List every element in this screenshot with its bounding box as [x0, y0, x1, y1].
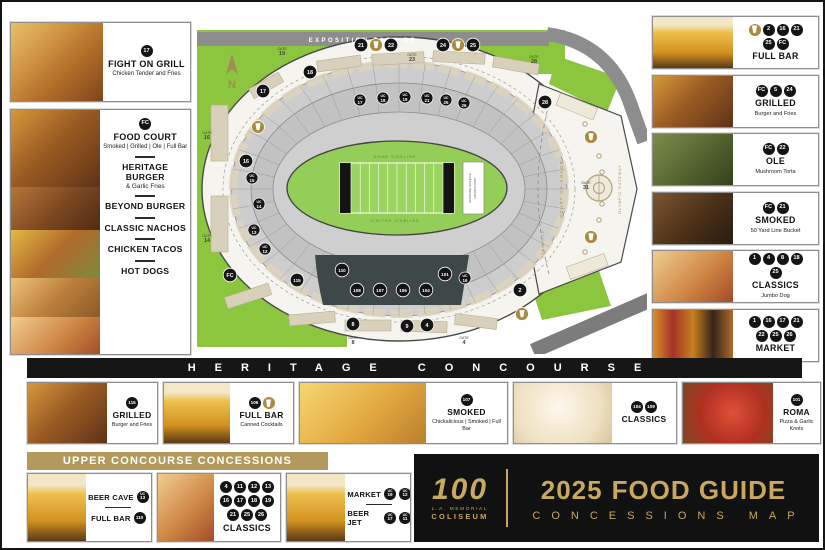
- vendor-subtitle: Canned Cocktails: [240, 422, 282, 428]
- stand-badge: 13: [262, 481, 274, 493]
- map-marker-9: 9: [400, 319, 414, 333]
- vendor-title: ROMA: [783, 408, 810, 417]
- stand-badge: 21: [791, 24, 803, 36]
- left-panel-column: 17FIGHT ON GRILLChicken Tender and Fries…: [10, 22, 191, 355]
- stand-badge: 17: [141, 45, 153, 57]
- heritage-card-full-bar: 106FULL BARCanned Cocktails: [163, 382, 294, 444]
- svg-text:8: 8: [352, 322, 355, 328]
- vendor-row: BEER JETUC17UC11: [347, 509, 411, 527]
- svg-text:15: 15: [250, 178, 255, 183]
- hotdog-photo: [653, 251, 733, 302]
- vendor-title: CLASSICS: [622, 415, 667, 424]
- menu-item-title: HERITAGE BURGER: [102, 163, 188, 182]
- map-marker-28: 28: [538, 95, 552, 109]
- vendor-info: 2162125FCFULL BAR: [733, 17, 818, 68]
- svg-text:17: 17: [260, 89, 266, 95]
- map-marker-beer: [252, 121, 265, 134]
- stand-badge: 8: [777, 253, 789, 265]
- map-marker-8: 8: [346, 317, 360, 331]
- fight-on-grill-info: 17FIGHT ON GRILLChicken Tender and Fries: [103, 23, 190, 101]
- vendor-subtitle: Jumbo Dog: [761, 293, 790, 300]
- hotdog-photo: [11, 317, 100, 354]
- court-of-honor-label: COURT OF HONOR: [559, 160, 564, 218]
- map-marker-16: 16: [239, 154, 253, 168]
- food-guide-title: 2025 FOOD GUIDE: [541, 475, 787, 506]
- panel-fight-on-grill: 17FIGHT ON GRILLChicken Tender and Fries: [10, 22, 191, 102]
- stand-badges: 2162125FC: [749, 24, 803, 50]
- stand-badge: FC: [756, 85, 768, 97]
- heritage-card-smoked: 107SMOKEDChickalicious | Smoked | Full B…: [299, 382, 508, 444]
- svg-text:21: 21: [358, 43, 364, 49]
- menu-item-title: CLASSIC NACHOS: [104, 224, 186, 234]
- stand-badge: 16: [220, 495, 232, 507]
- concessions-map-subtitle: CONCESSIONS MAP: [521, 510, 805, 522]
- gate-label-8: GATE8: [348, 336, 358, 346]
- smoked-photo: [653, 193, 733, 244]
- stand-badges: 106: [249, 397, 275, 409]
- beer-photo: [28, 474, 86, 541]
- map-marker-101: 101: [438, 267, 452, 281]
- map-marker-UC-16: UC16: [459, 272, 471, 284]
- svg-text:FC: FC: [226, 273, 233, 279]
- heritage-card-roma: 101ROMAPizza & Garlic Knots: [682, 382, 821, 444]
- burger-photo: [653, 76, 733, 127]
- gate-label-4: GATE4: [459, 336, 469, 346]
- panel-grilled: FC524GRILLEDBurger and Fries: [652, 75, 819, 128]
- svg-text:12: 12: [263, 249, 268, 254]
- map-marker-UC-15: UC15: [246, 172, 258, 184]
- svg-text:115: 115: [293, 278, 301, 283]
- logo-org-line2: COLISEUM: [431, 512, 488, 521]
- panel-ole: FC22OLEMushroom Torta: [652, 133, 819, 186]
- stand-badge: 16: [777, 24, 789, 36]
- year-label: 2025: [541, 475, 603, 506]
- svg-text:28: 28: [542, 100, 548, 106]
- svg-text:13: 13: [252, 230, 257, 235]
- stand-badge: 4: [220, 481, 232, 493]
- home-sideline-label: HOME SIDELINE: [374, 155, 417, 159]
- stand-badge: 104: [631, 401, 643, 413]
- map-marker-UC-13: UC13: [248, 224, 260, 236]
- stand-badge: FC: [777, 38, 789, 50]
- stand-badge: 26: [255, 509, 267, 521]
- stand-badge: UC17: [384, 512, 396, 524]
- map-marker-106: 106: [396, 283, 410, 297]
- menu-item: CHICKEN TACOS: [108, 245, 183, 255]
- stand-badge: 25: [763, 38, 775, 50]
- stand-badge: 19: [262, 495, 274, 507]
- vendor-subtitle: 50 Yard Line Bucket: [751, 228, 801, 235]
- hotdog-photo: [158, 474, 214, 541]
- coliseum-100-logo: 100: [432, 475, 488, 505]
- stand-badge: 11: [234, 481, 246, 493]
- stand-badge: 17: [777, 316, 789, 328]
- map-marker-beer: [516, 308, 529, 321]
- vendor-title: GRILLED: [755, 99, 796, 109]
- stand-badges: FC21: [763, 202, 789, 214]
- food-photo-stack: [11, 110, 100, 354]
- svg-text:24: 24: [440, 43, 446, 49]
- map-marker-2: 2: [513, 283, 527, 297]
- menu-item-title: CHICKEN TACOS: [108, 245, 183, 255]
- beer-photo: [164, 383, 230, 443]
- menu-divider: [135, 156, 155, 158]
- map-marker-UC-26: UC26: [458, 97, 470, 109]
- map-marker-22: 22: [384, 38, 398, 52]
- vendor-info: 101ROMAPizza & Garlic Knots: [773, 383, 820, 443]
- stand-badge-number: 19: [387, 493, 392, 498]
- panel-market-beer-jet: MARKETUC19UC12BEER JETUC17UC11: [286, 473, 411, 542]
- stand-badge: 12: [248, 481, 260, 493]
- stand-badge: 4: [763, 253, 775, 265]
- stand-badge: FC: [139, 118, 151, 130]
- vendor-info: 115GRILLEDBurger and Fries: [107, 383, 157, 443]
- map-marker-24: 24: [436, 38, 450, 52]
- peristyle-label: PERISTYLE: [541, 230, 545, 258]
- map-marker-18: 18: [303, 65, 317, 79]
- stand-badge: 18: [248, 495, 260, 507]
- beer-photo: [653, 17, 733, 68]
- stand-badge: 101: [791, 394, 803, 406]
- nachos-photo: [11, 230, 100, 278]
- stand-badges: FC22: [763, 143, 789, 155]
- endzone-suites-label: ENDZONE SUITES &: [468, 173, 472, 202]
- drinks-photo: [653, 310, 733, 361]
- svg-text:106: 106: [399, 288, 407, 293]
- map-marker-4: 4: [420, 318, 434, 332]
- row-divider: [366, 504, 392, 505]
- stadium-map: EXPOSITION PARK DR.NHOME SIDELINEVISITOR…: [197, 12, 647, 354]
- stand-badges: 411121316171819212526: [217, 481, 277, 521]
- vendor-subtitle: Chicken Tender and Fries: [112, 71, 180, 78]
- heritage-card-grilled: 115GRILLEDBurger and Fries: [27, 382, 158, 444]
- vendor-rows: MARKETUC19UC12BEER JETUC17UC11: [345, 474, 411, 541]
- vendor-subtitle: Mushroom Torta: [755, 169, 795, 176]
- stand-badge: 26: [784, 330, 796, 342]
- map-marker-beer: [452, 39, 465, 52]
- map-marker-UC-19: UC19: [399, 91, 411, 103]
- stand-badge-number: 13: [140, 496, 145, 501]
- torta-photo: [653, 134, 733, 185]
- stand-badge: 109: [645, 401, 657, 413]
- menu-item: HOT DOGS: [121, 267, 169, 277]
- vendor-info: 1481825CLASSICSJumbo Dog: [733, 251, 818, 302]
- menu-item: BEYOND BURGER: [105, 202, 185, 212]
- pizza-photo: [683, 383, 773, 443]
- svg-text:19: 19: [403, 97, 408, 102]
- svg-text:110: 110: [338, 268, 346, 273]
- map-marker-UC-14: UC14: [253, 198, 265, 210]
- stand-badge: 17: [234, 495, 246, 507]
- stand-badges: 101: [791, 394, 803, 406]
- vendor-title: SMOKED: [755, 216, 795, 226]
- right-panel-column: 2162125FCFULL BARFC524GRILLEDBurger and …: [652, 16, 819, 362]
- coliseum-logo: 100 L.A. MEMORIAL COLISEUM: [414, 475, 506, 521]
- menu-item-title: HOT DOGS: [121, 267, 169, 277]
- stand-badge: UC13: [137, 491, 149, 503]
- upper-concourse-row: BEER CAVEUC13FULL BAR1104111213161718192…: [27, 473, 411, 542]
- vendor-title: FULL BAR: [752, 52, 798, 62]
- compass-n: N: [228, 79, 236, 91]
- stand-badge: 18: [791, 253, 803, 265]
- vendor-title: MARKET: [756, 344, 795, 354]
- heritage-concourse-banner: HERITAGE CONCOURSE: [27, 358, 802, 378]
- panel-beer-cave-full-bar: BEER CAVEUC13FULL BAR110: [27, 473, 152, 542]
- menu-divider: [135, 195, 155, 197]
- vendor-info: FC524GRILLEDBurger and Fries: [733, 76, 818, 127]
- map-marker-UC-17: UC17: [354, 94, 366, 106]
- svg-text:21: 21: [425, 98, 430, 103]
- beer-photo: [287, 474, 345, 541]
- olympic-gateway-label: OLYMPIC GATEWAY: [618, 164, 622, 213]
- vendor-title: FIGHT ON GRILL: [108, 59, 185, 69]
- map-marker-108: 108: [350, 283, 364, 297]
- tacos-photo: [11, 278, 100, 317]
- vendor-row: MARKETUC19UC12: [347, 488, 411, 500]
- vendor-title: GRILLED: [113, 411, 152, 420]
- stand-badge: 21: [777, 202, 789, 214]
- vendor-info: 107SMOKEDChickalicious | Smoked | Full B…: [426, 383, 507, 443]
- vendor-title: FOOD COURT: [113, 132, 177, 142]
- vendor-title: CLASSICS: [752, 281, 799, 291]
- menu-item: HERITAGE BURGER& Garlic Fries: [102, 163, 188, 190]
- vendor-row: BEER CAVEUC13: [88, 491, 149, 503]
- stand-badge: 25: [770, 267, 782, 279]
- vendor-title: FULL BAR: [239, 411, 283, 420]
- map-marker-21: 21: [354, 38, 368, 52]
- svg-text:101: 101: [441, 272, 449, 277]
- burger-photo: [28, 383, 107, 443]
- beer-icon: [749, 24, 761, 36]
- svg-text:25: 25: [470, 43, 476, 49]
- stand-badge: 1: [749, 316, 761, 328]
- map-marker-17: 17: [256, 84, 270, 98]
- stand-badge: 1: [749, 253, 761, 265]
- vendor-title: CLASSICS: [223, 523, 271, 533]
- stand-badge: 16: [763, 316, 775, 328]
- vendor-subtitle: Smoked | Grilled | Ole | Full Bar: [103, 144, 187, 151]
- vendor-row: FULL BAR110: [91, 512, 145, 524]
- svg-text:104: 104: [422, 288, 430, 293]
- stand-badge: 107: [461, 394, 473, 406]
- stand-badge-number: 11: [403, 517, 408, 522]
- menu-item-subtitle: & Garlic Fries: [102, 183, 188, 191]
- stand-badge: 21: [227, 509, 239, 521]
- panel-upper-classics: 411121316171819212526CLASSICS: [157, 473, 282, 542]
- svg-text:2: 2: [519, 288, 522, 294]
- stand-badge: 25: [770, 330, 782, 342]
- vendor-label: BEER JET: [347, 509, 381, 527]
- stand-badge: 106: [249, 397, 261, 409]
- food-guide-poster: 17FIGHT ON GRILLChicken Tender and Fries…: [0, 0, 825, 550]
- stand-badges: 107: [461, 394, 473, 406]
- stand-badge: 110: [134, 512, 146, 524]
- vendor-label: FULL BAR: [91, 514, 130, 523]
- panel-full-bar: 2162125FCFULL BAR: [652, 16, 819, 69]
- stand-badge: 5: [770, 85, 782, 97]
- stand-badges: 1161721222526: [749, 316, 803, 342]
- stand-badge: UC11: [399, 512, 411, 524]
- svg-text:25: 25: [444, 100, 449, 105]
- panel-smoked: FC21SMOKED50 Yard Line Bucket: [652, 192, 819, 245]
- menu-divider: [135, 260, 155, 262]
- svg-text:107: 107: [376, 288, 384, 293]
- vendor-subtitle: Pizza & Garlic Knots: [775, 419, 818, 432]
- vendor-subtitle: Chickalicious | Smoked | Full Bar: [428, 419, 505, 432]
- svg-text:4: 4: [426, 323, 429, 329]
- svg-text:26: 26: [462, 103, 467, 108]
- svg-text:14: 14: [257, 204, 262, 209]
- map-marker-beer: [585, 231, 598, 244]
- map-marker-110: 110: [335, 263, 349, 277]
- chicken-tenders-photo: [11, 23, 103, 101]
- vendor-subtitle: Burger and Fries: [112, 422, 152, 428]
- map-marker-beer: [585, 131, 598, 144]
- stand-badge: 21: [791, 316, 803, 328]
- stand-badges: FC524: [756, 85, 796, 97]
- map-marker-25: 25: [466, 38, 480, 52]
- svg-text:16: 16: [463, 278, 468, 283]
- stand-badge-number: 12: [402, 493, 407, 498]
- stand-badge: FC: [763, 202, 775, 214]
- map-marker-UC-18: UC18: [377, 92, 389, 104]
- stand-badges: 17: [141, 45, 153, 57]
- mac-photo: [300, 383, 426, 443]
- vendor-info: 104109CLASSICS: [612, 383, 676, 443]
- vendor-title: SMOKED: [447, 408, 486, 417]
- stand-badge: 25: [241, 509, 253, 521]
- vendor-info: 106FULL BARCanned Cocktails: [230, 383, 293, 443]
- vendor-label: MARKET: [347, 490, 381, 499]
- map-marker-UC-25: UC25: [440, 94, 452, 106]
- vendor-subtitle: Burger and Fries: [755, 111, 797, 118]
- burger-photo: [11, 110, 100, 187]
- map-marker-FC: FC: [223, 268, 237, 282]
- food-guide-label: FOOD GUIDE: [612, 475, 787, 506]
- stand-badge: 24: [784, 85, 796, 97]
- upper-concourse-banner: UPPER CONCOURSE CONCESSIONS: [27, 452, 328, 470]
- vendor-info: 1161721222526MARKET: [733, 310, 818, 361]
- stand-badges: 104109: [631, 401, 657, 413]
- map-marker-beer: [370, 39, 383, 52]
- stand-badge: 22: [756, 330, 768, 342]
- stand-badges: 115: [126, 397, 138, 409]
- stand-badges: 1481825: [749, 253, 803, 279]
- panel-food-court: FCFOOD COURTSmoked | Grilled | Ole | Ful…: [10, 109, 191, 355]
- svg-text:22: 22: [388, 43, 394, 49]
- menu-item-title: BEYOND BURGER: [105, 202, 185, 212]
- map-marker-115: 115: [290, 273, 304, 287]
- panel-classics: 1481825CLASSICSJumbo Dog: [652, 250, 819, 303]
- stand-badge: 22: [777, 143, 789, 155]
- row-divider: [105, 507, 131, 508]
- title-text: 2025 FOOD GUIDE CONCESSIONS MAP: [508, 475, 819, 522]
- stand-badges: FC: [139, 118, 151, 130]
- vendor-info: FC22OLEMushroom Torta: [733, 134, 818, 185]
- stand-badge: FC: [763, 143, 775, 155]
- heritage-concourse-row: 115GRILLEDBurger and Fries106FULL BARCan…: [27, 382, 819, 444]
- vendor-rows: BEER CAVEUC13FULL BAR110: [86, 474, 151, 541]
- menu-item: CLASSIC NACHOS: [104, 224, 186, 234]
- vendor-title: OLE: [766, 157, 785, 167]
- panel-market: 1161721222526MARKET: [652, 309, 819, 362]
- svg-text:18: 18: [307, 70, 313, 76]
- stand-badge-number: 17: [387, 517, 392, 522]
- vendor-info: FC21SMOKED50 Yard Line Bucket: [733, 193, 818, 244]
- beer-icon: [263, 397, 275, 409]
- heritage-card-classics: 104109CLASSICS: [513, 382, 677, 444]
- title-block: 100 L.A. MEMORIAL COLISEUM 2025 FOOD GUI…: [414, 454, 819, 542]
- svg-text:9: 9: [406, 324, 409, 330]
- svg-text:18: 18: [381, 98, 386, 103]
- stand-badge: UC12: [399, 488, 411, 500]
- stand-badge: 115: [126, 397, 138, 409]
- map-marker-UC-12: UC12: [259, 243, 271, 255]
- map-marker-104: 104: [419, 283, 433, 297]
- svg-text:108: 108: [353, 288, 361, 293]
- food-court-info: FCFOOD COURTSmoked | Grilled | Ole | Ful…: [100, 110, 190, 354]
- visitor-sideline-label: VISITOR SIDELINE: [370, 219, 419, 223]
- beyond-photo: [11, 187, 100, 230]
- map-marker-UC-21: UC21: [421, 92, 433, 104]
- vendor-label: BEER CAVE: [88, 493, 134, 502]
- stand-badge: 2: [763, 24, 775, 36]
- endzone-suites-label2: GRANDSTAND: [473, 177, 477, 199]
- vendor-info: 411121316171819212526CLASSICS: [214, 474, 281, 541]
- menu-divider: [135, 238, 155, 240]
- svg-text:16: 16: [243, 159, 249, 165]
- stand-badge: UC19: [384, 488, 396, 500]
- map-marker-107: 107: [373, 283, 387, 297]
- svg-text:17: 17: [358, 100, 363, 105]
- menu-divider: [135, 217, 155, 219]
- popcorn-photo: [514, 383, 612, 443]
